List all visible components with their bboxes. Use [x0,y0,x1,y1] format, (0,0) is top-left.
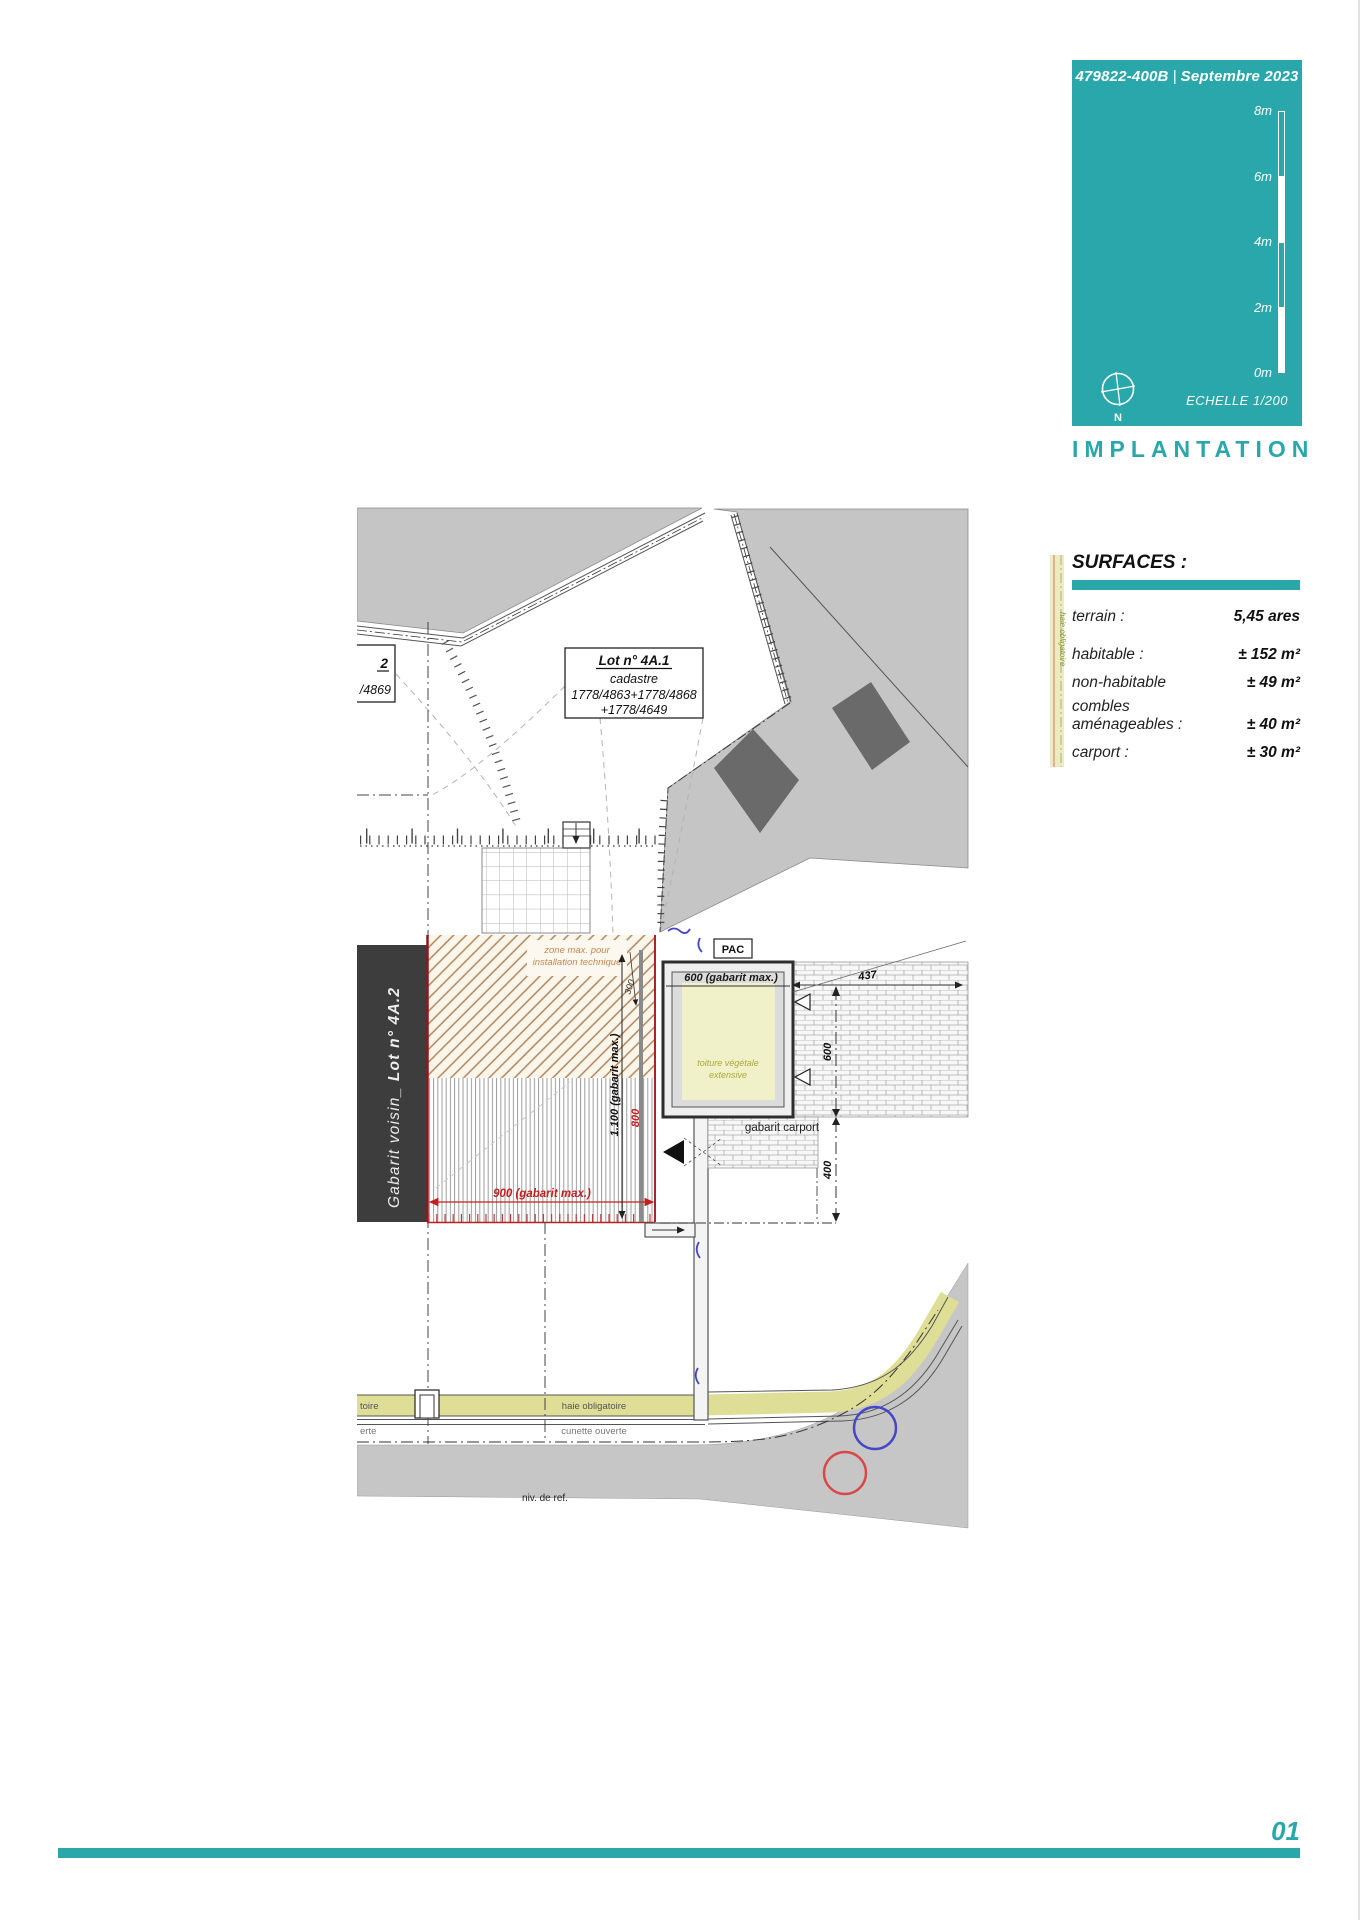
green-roof [682,983,775,1100]
technical-zone-label-line1: zone max. pour [543,945,610,956]
parcel-east [660,509,968,932]
surface-label-line2: aménageables : [1072,716,1182,733]
reference-level-label: niv. de ref. [522,1493,568,1504]
dim-600-label: 600 [822,1042,834,1061]
surface-row-combles: combles aménageables : ± 40 m² [1072,698,1300,734]
east-hedge-label: haie obligatoire [1058,612,1067,667]
surface-value: ± 152 m² [1238,646,1300,664]
carport-caption: gabarit carport [745,1122,820,1134]
dim-900-label: 900 (gabarit max.) [493,1188,591,1200]
neighbor-parcel-ref: /4869 [359,683,391,697]
lot-cadastre: cadastre [610,672,658,686]
gate [415,1390,439,1418]
lot-parcels-line2: +1778/4649 [601,703,667,717]
scale-bar-segment [1278,111,1285,177]
north-label: N [1114,412,1122,424]
surfaces-panel: SURFACES : terrain : 5,45 ares habitable… [1072,552,1300,590]
gutter-label-fragment: erte [360,1426,376,1437]
surface-label: habitable : [1072,646,1144,664]
lot-label-box: Lot n° 4A.1 cadastre 1778/4863+1778/4868… [565,648,703,718]
lot-parcels-line1: 1778/4863+1778/4868 [571,688,697,702]
surface-row-non-habitable: non-habitable ± 49 m² [1072,674,1300,692]
hedge-label: haie obligatoire [562,1401,626,1412]
scale-tick-0m: 0m [1232,365,1272,380]
hedge-label-fragment: toire [360,1401,378,1412]
footer-rule [58,1848,1300,1858]
neighbor-parcel-box: 2 /4869 [357,645,395,702]
scale-caption: ECHELLE 1/200 [1186,393,1288,408]
carport-gabarit-label: 600 (gabarit max.) [684,972,778,984]
neighbor-parcel-number: 2 [379,656,388,671]
surfaces-title: SURFACES : [1072,552,1300,574]
scale-bar-segment [1278,177,1285,242]
surface-label: combles aménageables : [1072,698,1182,734]
surface-label-line1: combles [1072,698,1130,715]
surface-row-carport: carport : ± 30 m² [1072,744,1300,762]
sheet-title: IMPLANTATION [1072,436,1302,463]
gutter-label: cunette ouverte [561,1426,627,1437]
dim-800-label: 800 [630,1108,642,1127]
north-compass-icon: N [1096,370,1140,426]
stair-marker [563,822,590,848]
scale-bar-segment [1278,242,1285,308]
surface-value: ± 49 m² [1247,674,1300,692]
neighbor-gabarit-label: Gabarit voisin_ Lot n° 4A.2 [386,987,403,1208]
surface-row-terrain: terrain : 5,45 ares [1072,608,1300,626]
dim-400-label: 400 [822,1160,834,1180]
scale-tick-4m: 4m [1232,234,1272,249]
lot-title: Lot n° 4A.1 [599,653,670,668]
title-block: 479822-400B|Septembre 2023 8m 6m 4m 2m 0… [1072,58,1302,426]
surface-label: carport : [1072,744,1129,762]
surface-value: ± 40 m² [1247,716,1300,734]
document-reference: 479822-400B|Septembre 2023 [1072,68,1302,85]
page-number: 01 [1240,1816,1300,1847]
survey-line [360,836,657,846]
doc-ref: 479822-400B [1075,68,1168,85]
surface-value: ± 30 m² [1247,744,1300,762]
pac-label: PAC [722,944,744,956]
parcel-north [357,508,702,633]
ref-separator: | [1169,68,1181,85]
scale-tick-2m: 2m [1232,300,1272,315]
scale-tick-6m: 6m [1232,169,1272,184]
doc-date: Septembre 2023 [1181,68,1299,85]
neighbor-gabarit-lot: Lot n° 4A.2 [386,987,403,1081]
hedge-band [357,1395,703,1416]
surface-label: non-habitable [1072,674,1166,692]
scale-tick-8m: 8m [1232,103,1272,118]
surface-row-habitable: habitable : ± 152 m² [1072,646,1300,664]
technical-zone-label-line2: installation technique [533,957,622,968]
surface-label: terrain : [1072,608,1125,626]
green-roof-label-line2: extensive [709,1070,747,1080]
page-edge-line [1358,0,1360,1920]
surfaces-rule [1072,580,1300,590]
scale-bar-segment [1278,308,1285,373]
green-roof-label-line1: toiture végétale [697,1058,759,1068]
dim-1100-label: 1.100 (gabarit max.) [609,1033,621,1136]
terrace-grid [482,848,590,933]
surface-value: 5,45 ares [1234,608,1300,626]
west-boundary-ticks [445,642,518,826]
neighbor-gabarit-prefix: Gabarit voisin_ [386,1081,403,1208]
carport [663,962,793,1117]
site-plan: haie obligatoire [357,400,1075,1550]
